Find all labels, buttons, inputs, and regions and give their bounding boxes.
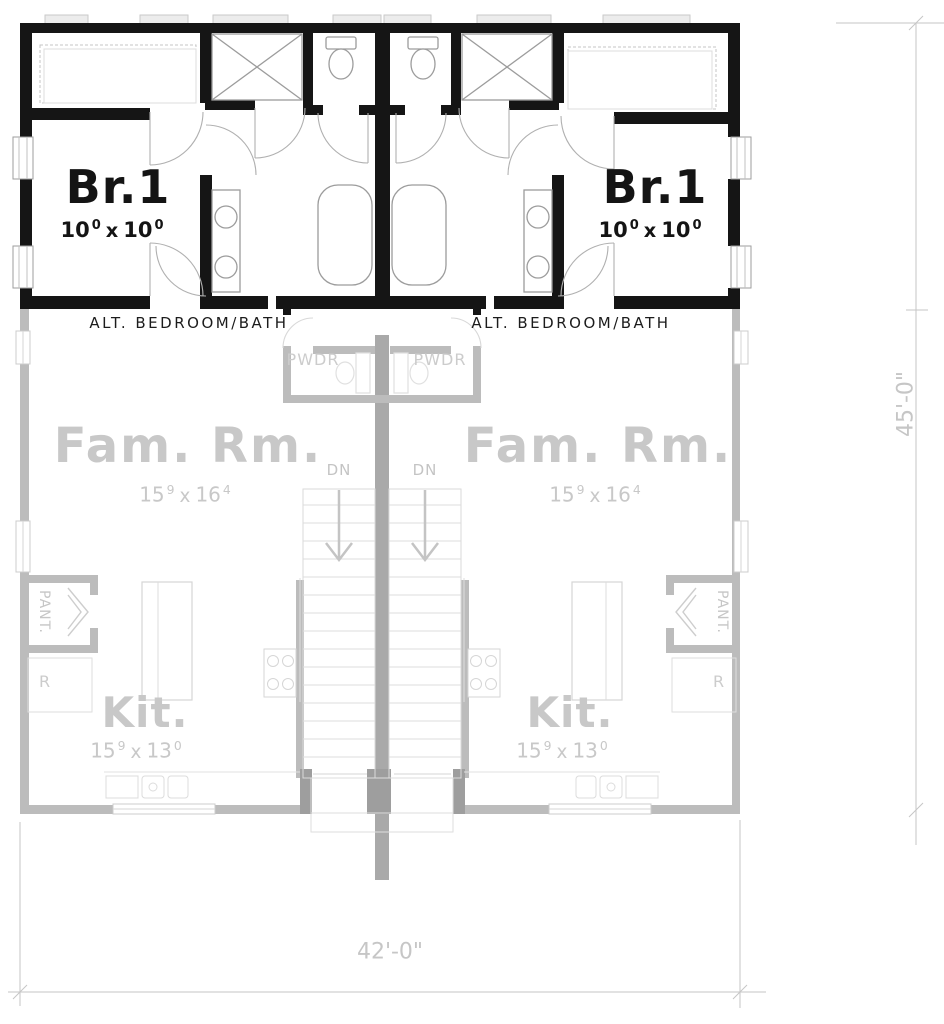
family-room-left-label: Fam. Rm.	[54, 418, 323, 474]
dim-in: 0	[154, 218, 163, 233]
dim-sep: x	[557, 742, 568, 763]
dim-ft: 10	[123, 218, 152, 242]
down-arrow-left-icon	[326, 490, 352, 560]
dim-sep: x	[106, 219, 118, 242]
bathtub-right-icon	[392, 185, 446, 285]
pantry-right-label: PANT.	[714, 590, 730, 634]
dim-ft: 15	[90, 739, 115, 763]
powder-door-arcs	[283, 318, 481, 348]
dim-ft: 15	[139, 483, 164, 507]
dim-sep: x	[644, 219, 656, 242]
dim-in: 0	[600, 738, 608, 753]
bedroom-right-dimensions: 100x100	[598, 218, 701, 242]
overall-depth-dimension: 45'-0"	[894, 371, 919, 437]
powder-left-label: PWDR	[287, 350, 340, 369]
stairs	[303, 489, 461, 778]
dim-ft: 16	[195, 483, 220, 507]
dim-in: 9	[577, 482, 585, 497]
stairs-down-right-label: DN	[413, 461, 438, 479]
dim-in: 0	[692, 218, 701, 233]
alt-caption-right: ALT. BEDROOM/BATH	[471, 314, 670, 332]
dim-sep: x	[180, 486, 191, 507]
bathtub-left-icon	[318, 185, 372, 285]
dim-in: 0	[630, 218, 639, 233]
bedroom-right-label: Br.1	[603, 160, 708, 214]
dim-ft: 16	[605, 483, 630, 507]
vanity-left-icon	[212, 190, 240, 292]
pantry-door-right-icon	[676, 588, 696, 636]
powder-right-label: PWDR	[414, 350, 467, 369]
family-room-left-dimensions: 159x164	[139, 482, 231, 507]
bedroom-left-dimensions: 100x100	[60, 218, 163, 242]
pantry-left-label: PANT.	[36, 590, 52, 634]
pantry-door-left-icon	[68, 588, 88, 636]
dim-ft: 15	[516, 739, 541, 763]
dim-sep: x	[131, 742, 142, 763]
dim-ft: 13	[146, 739, 171, 763]
shower-left-icon	[212, 34, 302, 100]
linework-overlay	[0, 0, 944, 1024]
family-room-right-dimensions: 159x164	[549, 482, 641, 507]
dim-sep: x	[590, 486, 601, 507]
alt-caption-left: ALT. BEDROOM/BATH	[89, 314, 288, 332]
kitchen-left-label: Kit.	[102, 688, 189, 737]
overall-width-dimension: 42'-0"	[357, 940, 423, 965]
dim-ft: 10	[60, 218, 89, 242]
dim-in: 0	[174, 738, 182, 753]
refrigerator-right-label: R	[713, 672, 725, 691]
stairs-down-left-label: DN	[327, 461, 352, 479]
dim-in: 4	[633, 482, 641, 497]
dim-ft: 10	[598, 218, 627, 242]
vanity-right-icon	[524, 190, 552, 292]
dim-in: 0	[92, 218, 101, 233]
dim-in: 9	[544, 738, 552, 753]
down-arrow-right-icon	[412, 490, 438, 560]
kitchen-left-dimensions: 159x130	[90, 738, 182, 763]
dim-in: 9	[167, 482, 175, 497]
floor-plan-canvas: Br.1 100x100 Br.1 100x100 ALT. BEDROOM/B…	[0, 0, 944, 1024]
toilet-right-icon	[408, 37, 438, 79]
dim-in: 9	[118, 738, 126, 753]
closet-shelf-left	[40, 45, 196, 103]
dim-ft: 13	[572, 739, 597, 763]
dim-in: 4	[223, 482, 231, 497]
kitchen-right-label: Kit.	[527, 688, 614, 737]
shower-right-icon	[462, 34, 552, 100]
bedroom-left-label: Br.1	[66, 160, 171, 214]
rear-porch	[311, 778, 453, 832]
dim-ft: 15	[549, 483, 574, 507]
closet-shelf-right	[568, 47, 716, 109]
dim-ft: 10	[661, 218, 690, 242]
refrigerator-left-label: R	[39, 672, 51, 691]
kitchen-right-dimensions: 159x130	[516, 738, 608, 763]
family-room-right-label: Fam. Rm.	[464, 418, 733, 474]
toilet-left-icon	[326, 37, 356, 79]
